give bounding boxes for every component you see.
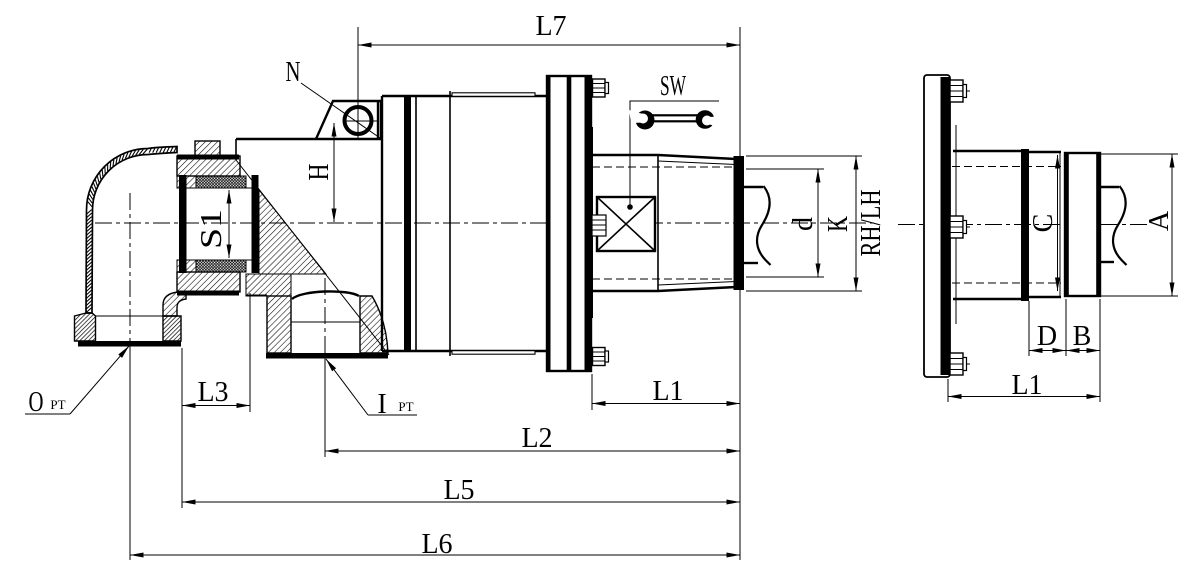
svg-text:L3: L3 <box>197 377 228 408</box>
svg-text:N: N <box>286 57 301 88</box>
svg-text:S1: S1 <box>193 209 228 249</box>
svg-text:d: d <box>788 217 819 231</box>
svg-text:K: K <box>823 216 854 232</box>
svg-text:B: B <box>1073 321 1092 352</box>
svg-text:SW: SW <box>660 71 686 102</box>
svg-text:O: O <box>29 387 44 418</box>
svg-text:A: A <box>1144 210 1175 231</box>
svg-text:L1: L1 <box>1011 370 1042 401</box>
svg-text:PT: PT <box>50 397 65 412</box>
svg-text:L2: L2 <box>521 423 552 454</box>
svg-text:L5: L5 <box>443 475 474 506</box>
svg-text:H: H <box>304 164 335 181</box>
svg-text:L6: L6 <box>421 529 452 560</box>
svg-text:D: D <box>1037 321 1057 352</box>
svg-text:PT: PT <box>398 399 413 414</box>
svg-text:L7: L7 <box>535 11 566 42</box>
svg-text:RH/LH: RH/LH <box>856 190 887 257</box>
svg-text:C: C <box>1028 214 1059 233</box>
svg-text:L1: L1 <box>652 376 683 407</box>
